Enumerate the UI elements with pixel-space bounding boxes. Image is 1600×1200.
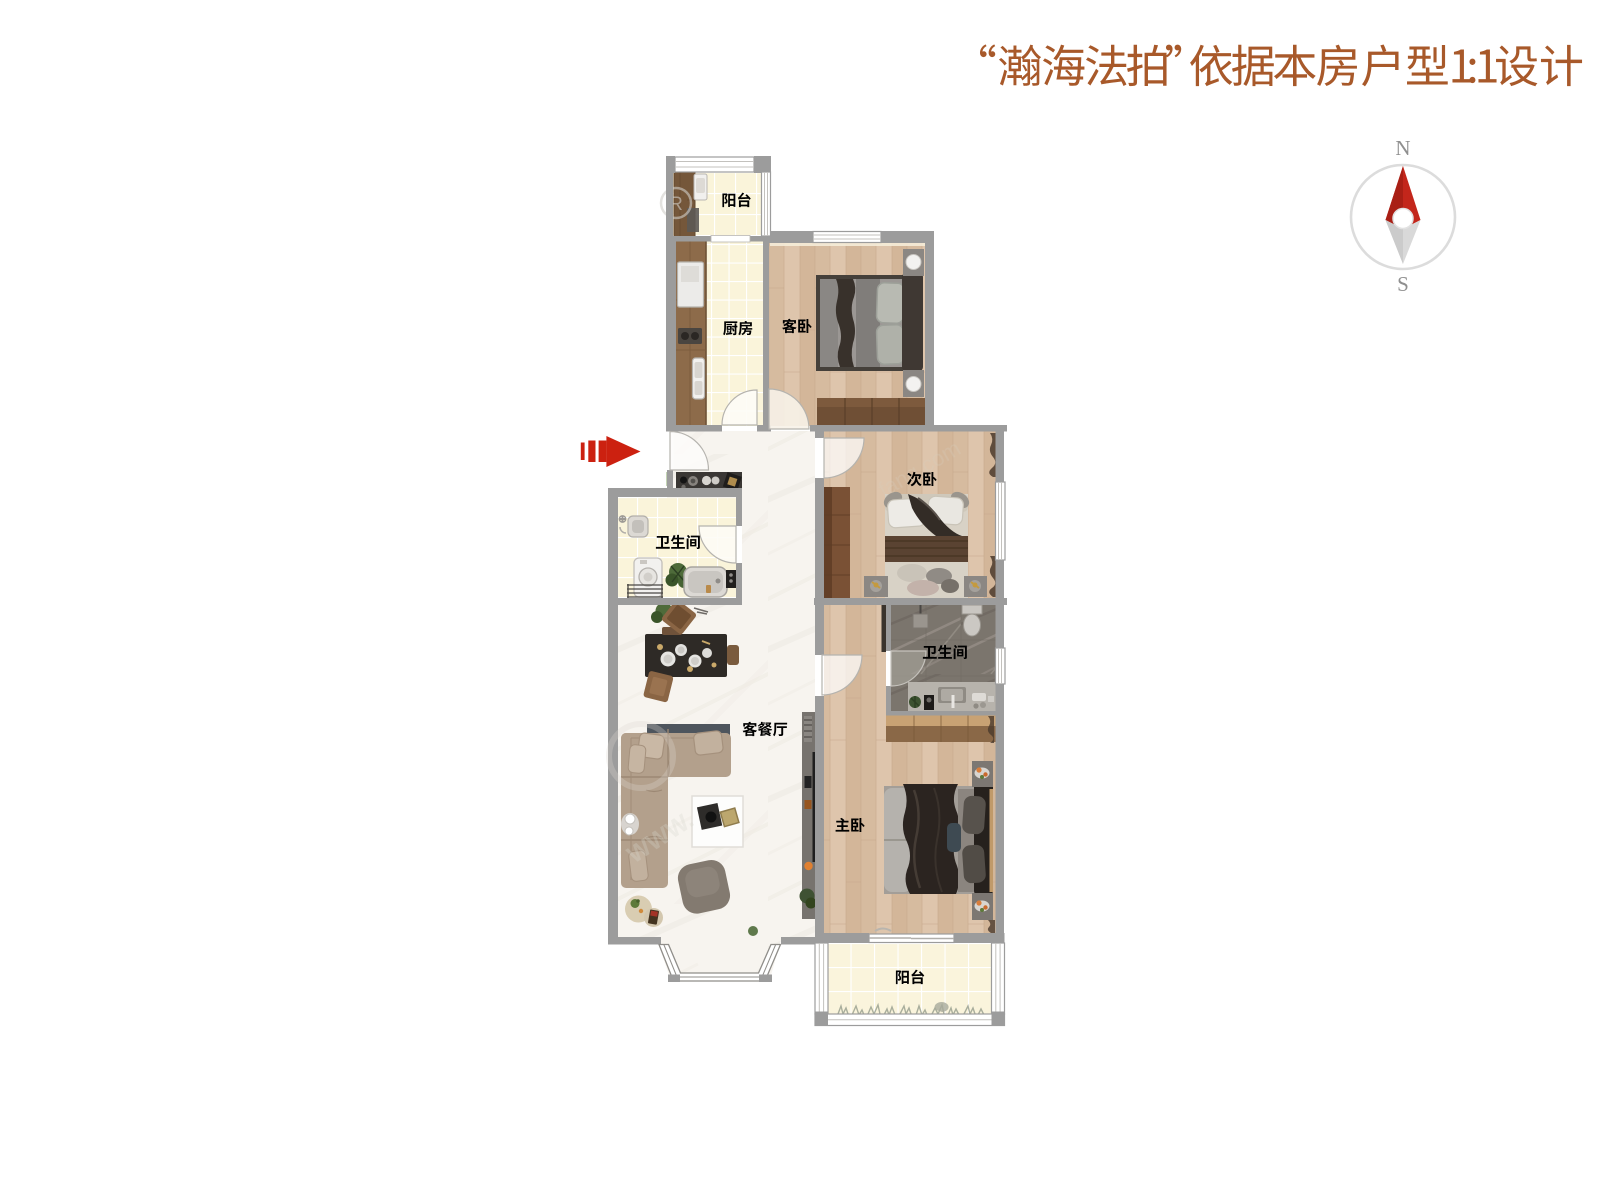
svg-text:N: N bbox=[1395, 136, 1410, 160]
svg-text:S: S bbox=[1397, 272, 1409, 296]
